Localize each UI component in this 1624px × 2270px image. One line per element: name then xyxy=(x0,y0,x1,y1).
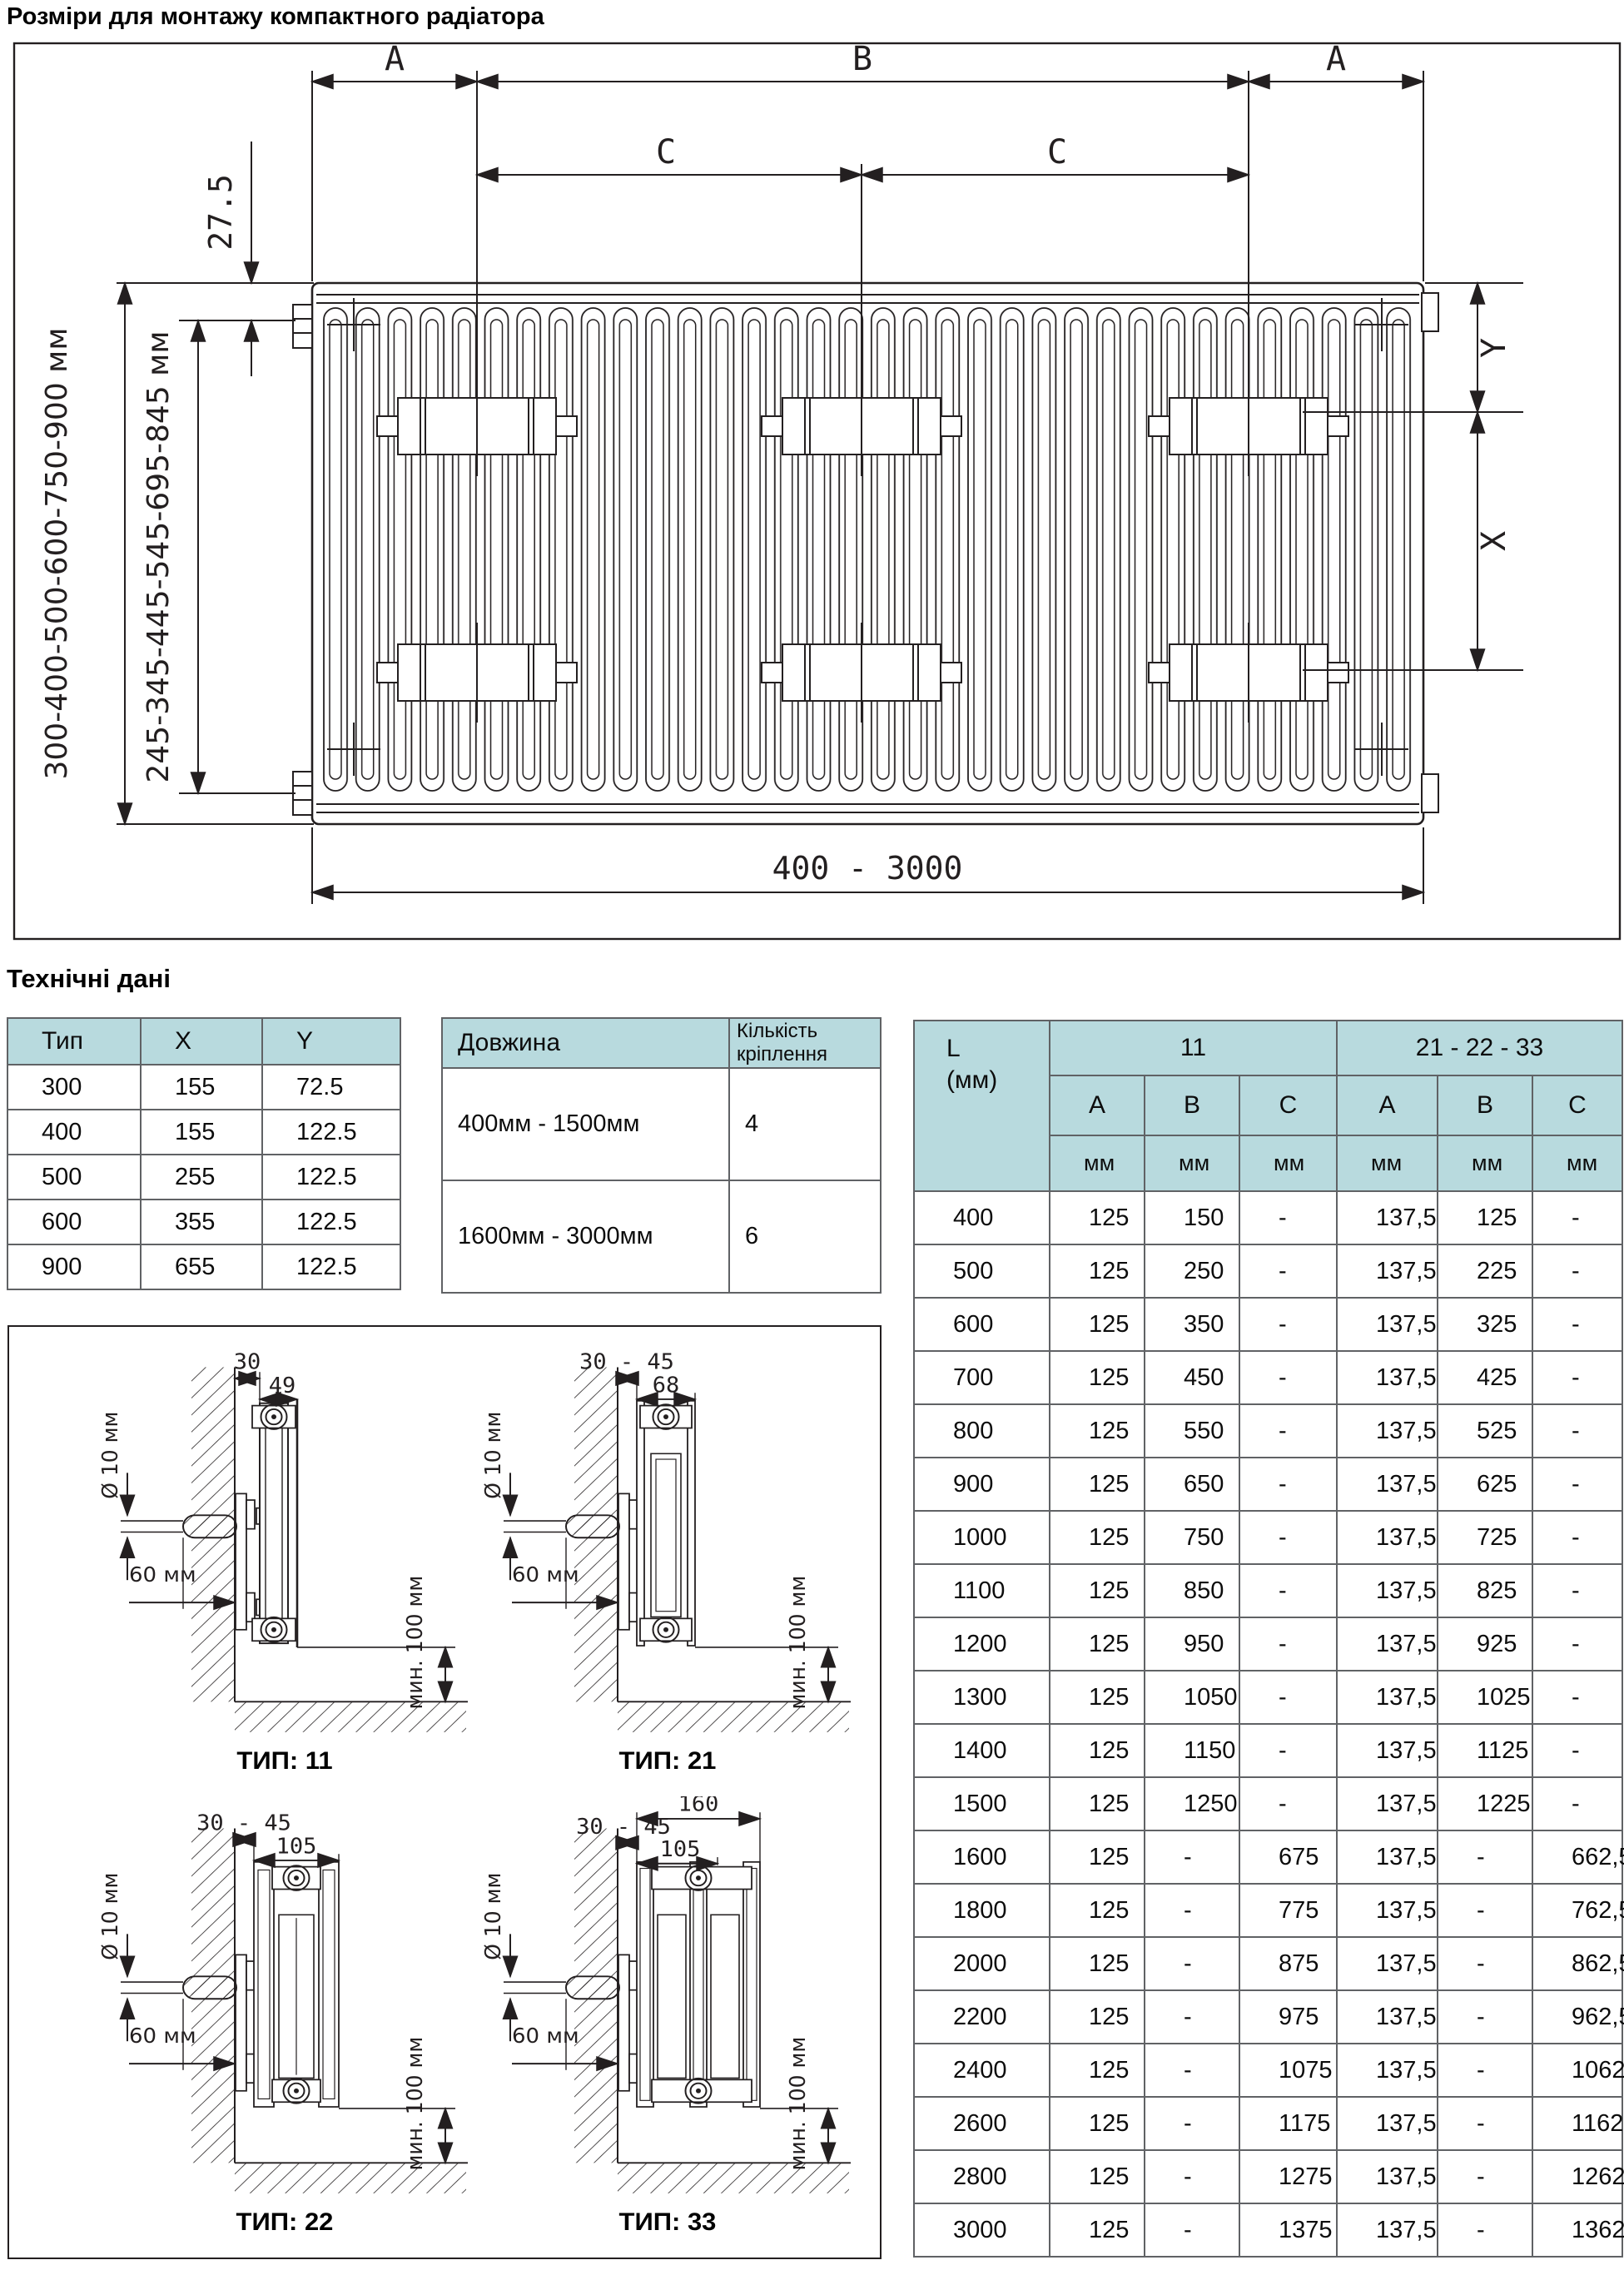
cell: 900 xyxy=(7,1244,141,1289)
cell: 125 xyxy=(1050,1617,1145,1671)
cell: 1600мм - 3000мм xyxy=(442,1180,729,1293)
diagram-caption: ТИП: 33 xyxy=(619,2208,717,2236)
cell: - xyxy=(1532,1458,1622,1511)
anchor-dowel xyxy=(121,1515,236,1537)
cell: 1000 xyxy=(914,1511,1050,1564)
cell: 225 xyxy=(1438,1244,1532,1298)
cell: 137,5 xyxy=(1337,1671,1438,1724)
cell: 137,5 xyxy=(1337,1404,1438,1458)
dim-label-length-range: 400 - 3000 xyxy=(772,850,963,887)
cell: - xyxy=(1239,1671,1337,1724)
cell: 850 xyxy=(1145,1564,1239,1617)
dim-left-inner xyxy=(179,320,295,793)
dim-anchor-depth: 60 мм xyxy=(129,1563,196,1587)
cell: - xyxy=(1532,1404,1622,1458)
subheader: B xyxy=(1145,1075,1239,1135)
radiator-section xyxy=(637,1862,760,2107)
cell: 137,5 xyxy=(1337,1511,1438,1564)
dim-label-height-range: 300-400-500-600-750-900 мм xyxy=(40,328,74,780)
dim-wall-gap: 30 - 45 xyxy=(196,1811,291,1835)
cell: - xyxy=(1532,1777,1622,1830)
cell: - xyxy=(1239,1511,1337,1564)
cell: - xyxy=(1239,1564,1337,1617)
dim-anchor-depth: 60 мм xyxy=(129,2024,196,2049)
cell: - xyxy=(1532,1351,1622,1404)
cell: 975 xyxy=(1239,1990,1337,2044)
table-row: 1000125750-137,5725- xyxy=(914,1511,1622,1564)
cell: 825 xyxy=(1438,1564,1532,1617)
diagram-type-11: 30 49 Ø 10 мм 60 мм мин. 100 мм ТИП: 11 xyxy=(97,1335,472,1791)
dim-depth: 49 xyxy=(269,1373,295,1398)
cell: 137,5 xyxy=(1337,1564,1438,1617)
dim-floor-clearance: мин. 100 мм xyxy=(403,2037,429,2171)
cell: 125 xyxy=(1050,1564,1145,1617)
cell: 550 xyxy=(1145,1404,1239,1458)
cell: 450 xyxy=(1145,1351,1239,1404)
cell: 255 xyxy=(141,1155,262,1200)
cell: 137,5 xyxy=(1337,1777,1438,1830)
cell: 2400 xyxy=(914,2044,1050,2097)
mounting-dimensions-table: L (мм) 11 21 - 22 - 33 A B C A B C мм мм… xyxy=(913,1020,1623,2258)
table-row: 1600125-675137,5-662,5 xyxy=(914,1830,1622,1884)
cell: 137,5 xyxy=(1337,1830,1438,1884)
cell: 355 xyxy=(141,1200,262,1244)
diagram-type-21: 30 - 45 68 Ø 10 мм 60 мм мин. 100 мм ТИП… xyxy=(480,1335,855,1791)
cell: 600 xyxy=(914,1298,1050,1351)
radiator-mounting-drawing: A B A C C 27.5 300-400-500-600-750-900 м… xyxy=(0,0,1624,957)
table-row: 1100125850-137,5825- xyxy=(914,1564,1622,1617)
cell: 125 xyxy=(1050,1404,1145,1458)
subheader: B xyxy=(1438,1075,1532,1135)
unit-cell: мм xyxy=(1145,1135,1239,1191)
cell: - xyxy=(1239,1724,1337,1777)
cell: 137,5 xyxy=(1337,1990,1438,2044)
cell: 1125 xyxy=(1438,1724,1532,1777)
cell: - xyxy=(1438,2150,1532,2203)
cell: 137,5 xyxy=(1337,1458,1438,1511)
cell: 4 xyxy=(729,1068,881,1180)
diagram-caption: ТИП: 21 xyxy=(619,1747,717,1775)
diagram-caption: ТИП: 11 xyxy=(236,1747,332,1775)
dim-table-group-11: 11 xyxy=(1050,1021,1337,1075)
anchor-dowel xyxy=(504,1976,619,1999)
cell: 300 xyxy=(7,1065,141,1110)
table-row: 900125650-137,5625- xyxy=(914,1458,1622,1511)
subheader: C xyxy=(1239,1075,1337,1135)
cell: 137,5 xyxy=(1337,2044,1438,2097)
cell: - xyxy=(1145,1830,1239,1884)
cell: 1800 xyxy=(914,1884,1050,1937)
cell: - xyxy=(1532,1564,1622,1617)
cell: 1075 xyxy=(1239,2044,1337,2097)
cell: 155 xyxy=(141,1110,262,1155)
l-unit: (мм) xyxy=(946,1065,1049,1096)
cell: 137,5 xyxy=(1337,1298,1438,1351)
cell: 325 xyxy=(1438,1298,1532,1351)
cell: 125 xyxy=(1050,1777,1145,1830)
radiator-section xyxy=(254,1862,339,2107)
dim-label-c-left: C xyxy=(656,133,676,171)
cell: 1050 xyxy=(1145,1671,1239,1724)
wall-bracket xyxy=(236,1955,255,2090)
cell: 700 xyxy=(914,1351,1050,1404)
table-row: 1200125950-137,5925- xyxy=(914,1617,1622,1671)
left-hanger-bottom xyxy=(293,772,312,815)
radiator-fins xyxy=(320,306,1415,795)
cell: 1262,5 xyxy=(1532,2150,1622,2203)
anchor-dowel xyxy=(121,1976,236,1999)
cell: 137,5 xyxy=(1337,2097,1438,2150)
cell: 750 xyxy=(1145,1511,1239,1564)
table-row: 1600мм - 3000мм 6 xyxy=(442,1180,881,1293)
fasteners-count-table: Довжина Кількість кріплення 400мм - 1500… xyxy=(441,1017,882,1294)
cell: 1062,5 xyxy=(1532,2044,1622,2097)
cell: - xyxy=(1532,1724,1622,1777)
cell: - xyxy=(1438,2044,1532,2097)
radiator-section xyxy=(637,1401,695,1646)
dim-anchor-depth: 60 мм xyxy=(512,1563,579,1587)
cell: 600 xyxy=(7,1200,141,1244)
subheader: C xyxy=(1532,1075,1622,1135)
section-title-technical-data: Технічні дані xyxy=(7,964,171,994)
dim-floor-clearance: мин. 100 мм xyxy=(786,2037,812,2171)
cell: - xyxy=(1239,1458,1337,1511)
cell: 125 xyxy=(1050,1884,1145,1937)
cell: 1100 xyxy=(914,1564,1050,1617)
dim-label-x: X xyxy=(1475,531,1513,551)
cell: 775 xyxy=(1239,1884,1337,1937)
cell: 6 xyxy=(729,1180,881,1293)
table-row: 600125350-137,5325- xyxy=(914,1298,1622,1351)
unit-cell: мм xyxy=(1438,1135,1532,1191)
table-row: 2000125-875137,5-862,5 xyxy=(914,1937,1622,1990)
cell: 1162,5 xyxy=(1532,2097,1622,2150)
cell: 150 xyxy=(1145,1191,1239,1244)
cell: - xyxy=(1145,2150,1239,2203)
dim-hole-dia: Ø 10 мм xyxy=(481,1412,507,1499)
cell: 1375 xyxy=(1239,2203,1337,2257)
cell: - xyxy=(1145,1937,1239,1990)
table-row: 2600125-1175137,5-1162,5 xyxy=(914,2097,1622,2150)
cell: 400мм - 1500мм xyxy=(442,1068,729,1180)
diagram-type-22: 30 - 45 105 Ø 10 мм 60 мм мин. 100 мм ТИ… xyxy=(97,1796,472,2253)
dim-label-27-5: 27.5 xyxy=(202,174,239,251)
cell: 400 xyxy=(7,1110,141,1155)
cell: 675 xyxy=(1239,1830,1337,1884)
cell: 2600 xyxy=(914,2097,1050,2150)
cell: 125 xyxy=(1050,2203,1145,2257)
cell: 137,5 xyxy=(1337,1937,1438,1990)
cell: 137,5 xyxy=(1337,1724,1438,1777)
cell: 950 xyxy=(1145,1617,1239,1671)
cell: - xyxy=(1239,1404,1337,1458)
cell: - xyxy=(1532,1191,1622,1244)
cell: 1300 xyxy=(914,1671,1050,1724)
cell: 725 xyxy=(1438,1511,1532,1564)
cell: 400 xyxy=(914,1191,1050,1244)
cell: 1275 xyxy=(1239,2150,1337,2203)
cell: 125 xyxy=(1050,1458,1145,1511)
cell: - xyxy=(1239,1244,1337,1298)
dim-label-mount-height-range: 245-345-445-545-695-845 мм xyxy=(142,331,176,783)
cell: 1600 xyxy=(914,1830,1050,1884)
mounting-types-panel: 30 49 Ø 10 мм 60 мм мин. 100 мм ТИП: 11 xyxy=(7,1325,882,2259)
table-row: 300 155 72.5 xyxy=(7,1065,400,1110)
cell: 862,5 xyxy=(1532,1937,1622,1990)
cell: 962,5 xyxy=(1532,1990,1622,2044)
cell: 1362,5 xyxy=(1532,2203,1622,2257)
cell: - xyxy=(1438,1830,1532,1884)
table-row: 13001251050-137,51025- xyxy=(914,1671,1622,1724)
cell: 1250 xyxy=(1145,1777,1239,1830)
wall-bracket xyxy=(618,1493,638,1629)
cell: 125 xyxy=(1050,2150,1145,2203)
cell: 1500 xyxy=(914,1777,1050,1830)
fasteners-header-length: Довжина xyxy=(442,1018,729,1068)
cell: 125 xyxy=(1050,1298,1145,1351)
cell: 875 xyxy=(1239,1937,1337,1990)
cell: 137,5 xyxy=(1337,1884,1438,1937)
cell: 137,5 xyxy=(1337,1244,1438,1298)
cell: 125 xyxy=(1050,1830,1145,1884)
cell: 125 xyxy=(1050,1351,1145,1404)
table-row: 700125450-137,5425- xyxy=(914,1351,1622,1404)
cell: - xyxy=(1145,2203,1239,2257)
dim-depth: 105 xyxy=(660,1837,701,1862)
table-row: 500 255 122.5 xyxy=(7,1155,400,1200)
cell: 125 xyxy=(1050,1724,1145,1777)
cell: 1225 xyxy=(1438,1777,1532,1830)
type-table-header-y: Y xyxy=(262,1018,400,1065)
dim-label-a-left: A xyxy=(385,40,405,78)
radiator-section xyxy=(252,1399,297,1647)
cell: 3000 xyxy=(914,2203,1050,2257)
cell: 137,5 xyxy=(1337,1191,1438,1244)
cell: - xyxy=(1145,2044,1239,2097)
wall-bracket xyxy=(618,1955,638,2090)
table-row: 2800125-1275137,5-1262,5 xyxy=(914,2150,1622,2203)
table-row: 14001251150-137,51125- xyxy=(914,1724,1622,1777)
cell: 122.5 xyxy=(262,1244,400,1289)
cell: 525 xyxy=(1438,1404,1532,1458)
l-label: L xyxy=(946,1033,1049,1065)
cell: - xyxy=(1532,1298,1622,1351)
cell: 1400 xyxy=(914,1724,1050,1777)
unit-cell: мм xyxy=(1337,1135,1438,1191)
subheader: A xyxy=(1337,1075,1438,1135)
dim-wall-gap: 30 - 45 xyxy=(579,1349,674,1374)
cell: 350 xyxy=(1145,1298,1239,1351)
dim-hole-dia: Ø 10 мм xyxy=(98,1873,124,1960)
cell: 137,5 xyxy=(1337,1617,1438,1671)
table-row: 1800125-775137,5-762,5 xyxy=(914,1884,1622,1937)
dim-label-b: B xyxy=(852,40,872,78)
table-row: 800125550-137,5525- xyxy=(914,1404,1622,1458)
unit-cell: мм xyxy=(1239,1135,1337,1191)
dim-hole-dia: Ø 10 мм xyxy=(98,1412,124,1499)
cell: 137,5 xyxy=(1337,1351,1438,1404)
cell: 2800 xyxy=(914,2150,1050,2203)
table-row: 400125150-137,5125- xyxy=(914,1191,1622,1244)
cell: 122.5 xyxy=(262,1155,400,1200)
cell: 125 xyxy=(1050,1990,1145,2044)
cell: 500 xyxy=(914,1244,1050,1298)
cell: 122.5 xyxy=(262,1200,400,1244)
dim-wall-gap: 30 - 45 xyxy=(576,1815,671,1840)
cell: 125 xyxy=(1050,1244,1145,1298)
cell: 122.5 xyxy=(262,1110,400,1155)
cell: 2200 xyxy=(914,1990,1050,2044)
dim-total-depth: 160 xyxy=(678,1796,719,1816)
table-row: 400мм - 1500мм 4 xyxy=(442,1068,881,1180)
cell: 1200 xyxy=(914,1617,1050,1671)
cell: 1150 xyxy=(1145,1724,1239,1777)
cell: 800 xyxy=(914,1404,1050,1458)
cell: 625 xyxy=(1438,1458,1532,1511)
cell: 250 xyxy=(1145,1244,1239,1298)
dim-depth: 105 xyxy=(276,1834,317,1859)
table-row: 3000125-1375137,5-1362,5 xyxy=(914,2203,1622,2257)
cell: - xyxy=(1438,2097,1532,2150)
left-hanger-top xyxy=(293,305,312,348)
cell: - xyxy=(1145,1884,1239,1937)
cell: - xyxy=(1532,1617,1622,1671)
dim-depth: 68 xyxy=(653,1373,679,1398)
cell: - xyxy=(1532,1671,1622,1724)
cell: 655 xyxy=(141,1244,262,1289)
cell: - xyxy=(1239,1351,1337,1404)
table-row: 15001251250-137,51225- xyxy=(914,1777,1622,1830)
cell: - xyxy=(1239,1777,1337,1830)
cell: 125 xyxy=(1050,1671,1145,1724)
dim-floor-clearance: мин. 100 мм xyxy=(786,1576,812,1710)
dim-floor-clearance: мин. 100 мм xyxy=(403,1576,429,1710)
cell: 137,5 xyxy=(1337,2203,1438,2257)
cell: 125 xyxy=(1050,1511,1145,1564)
dim-table-group-21-22-33: 21 - 22 - 33 xyxy=(1337,1021,1622,1075)
cell: - xyxy=(1532,1511,1622,1564)
unit-cell: мм xyxy=(1050,1135,1145,1191)
type-table-header-x: X xyxy=(141,1018,262,1065)
diagram-type-33: 160 30 - 45 105 Ø 10 мм 60 мм мин. 100 м… xyxy=(480,1796,855,2253)
cell: 662,5 xyxy=(1532,1830,1622,1884)
table-row: 400 155 122.5 xyxy=(7,1110,400,1155)
table-row: 2200125-975137,5-962,5 xyxy=(914,1990,1622,2044)
cell: - xyxy=(1532,1244,1622,1298)
cell: 900 xyxy=(914,1458,1050,1511)
cell: 72.5 xyxy=(262,1065,400,1110)
fasteners-header-qty: Кількість кріплення xyxy=(729,1018,881,1068)
cell: 125 xyxy=(1050,1191,1145,1244)
cell: 925 xyxy=(1438,1617,1532,1671)
cell: - xyxy=(1145,2097,1239,2150)
cell: - xyxy=(1438,2203,1532,2257)
dim-label-y: Y xyxy=(1475,338,1513,358)
dim-label-c-right: C xyxy=(1047,133,1067,171)
table-row: 500125250-137,5225- xyxy=(914,1244,1622,1298)
cell: - xyxy=(1438,1937,1532,1990)
cell: 762,5 xyxy=(1532,1884,1622,1937)
cell: 1175 xyxy=(1239,2097,1337,2150)
type-table-header-tip: Тип xyxy=(7,1018,141,1065)
cell: - xyxy=(1145,1990,1239,2044)
cell: 125 xyxy=(1438,1191,1532,1244)
cell: 500 xyxy=(7,1155,141,1200)
dim-hole-dia: Ø 10 мм xyxy=(481,1873,507,1960)
cell: 125 xyxy=(1050,2097,1145,2150)
diagram-caption: ТИП: 22 xyxy=(236,2208,334,2236)
dim-table-header-l: L (мм) xyxy=(914,1021,1050,1191)
dim-anchor-depth: 60 мм xyxy=(512,2024,579,2049)
cell: 2000 xyxy=(914,1937,1050,1990)
anchor-dowel xyxy=(504,1515,619,1537)
cell: - xyxy=(1239,1298,1337,1351)
dim-wall-gap: 30 xyxy=(234,1349,261,1374)
type-xy-table: Тип X Y 300 155 72.5 400 155 122.5 500 2… xyxy=(7,1017,401,1290)
cell: 155 xyxy=(141,1065,262,1110)
cell: 137,5 xyxy=(1337,2150,1438,2203)
table-row: 900 655 122.5 xyxy=(7,1244,400,1289)
cell: 125 xyxy=(1050,1937,1145,1990)
cell: - xyxy=(1438,1884,1532,1937)
table-row: 600 355 122.5 xyxy=(7,1200,400,1244)
dim-label-a-right: A xyxy=(1326,40,1346,78)
subheader: A xyxy=(1050,1075,1145,1135)
cell: - xyxy=(1438,1990,1532,2044)
unit-cell: мм xyxy=(1532,1135,1622,1191)
cell: 125 xyxy=(1050,2044,1145,2097)
cell: 1025 xyxy=(1438,1671,1532,1724)
cell: 650 xyxy=(1145,1458,1239,1511)
cell: - xyxy=(1239,1191,1337,1244)
cell: 425 xyxy=(1438,1351,1532,1404)
radiator-front-view xyxy=(293,283,1438,824)
cell: - xyxy=(1239,1617,1337,1671)
table-row: 2400125-1075137,5-1062,5 xyxy=(914,2044,1622,2097)
